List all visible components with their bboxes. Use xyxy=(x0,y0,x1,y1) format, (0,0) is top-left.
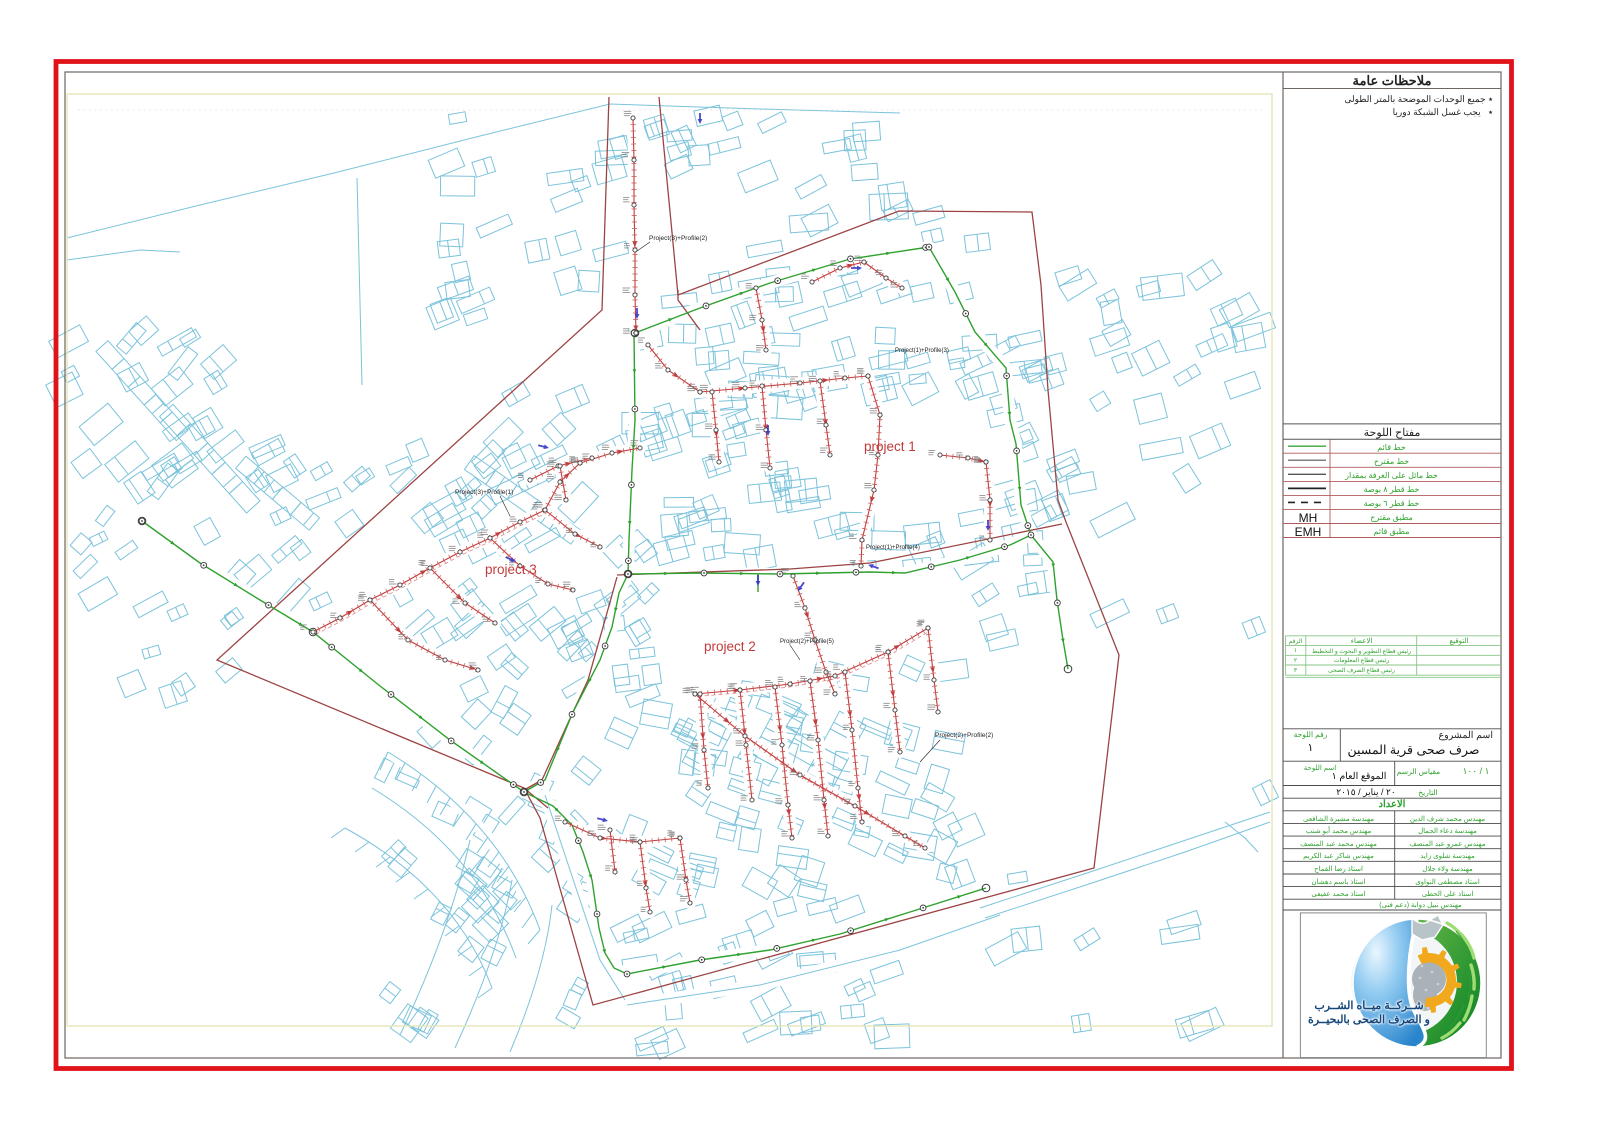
svg-text:Project(1)+Profile(4): Project(1)+Profile(4) xyxy=(866,545,920,551)
svg-text:project 3: project 3 xyxy=(485,562,537,577)
svg-text:Project(2)+Profile(5): Project(2)+Profile(5) xyxy=(780,639,834,645)
svg-text:Project(1)+Profile(3): Project(1)+Profile(3) xyxy=(895,348,949,354)
svg-text:project 2: project 2 xyxy=(704,639,756,654)
svg-text:Project(3)+Profile(1): Project(3)+Profile(1) xyxy=(455,489,513,496)
svg-text:Project(3)+Profile(2): Project(3)+Profile(2) xyxy=(649,235,707,242)
svg-text:Project(2)+Profile(2): Project(2)+Profile(2) xyxy=(935,732,993,739)
svg-text:project 1: project 1 xyxy=(864,439,916,454)
